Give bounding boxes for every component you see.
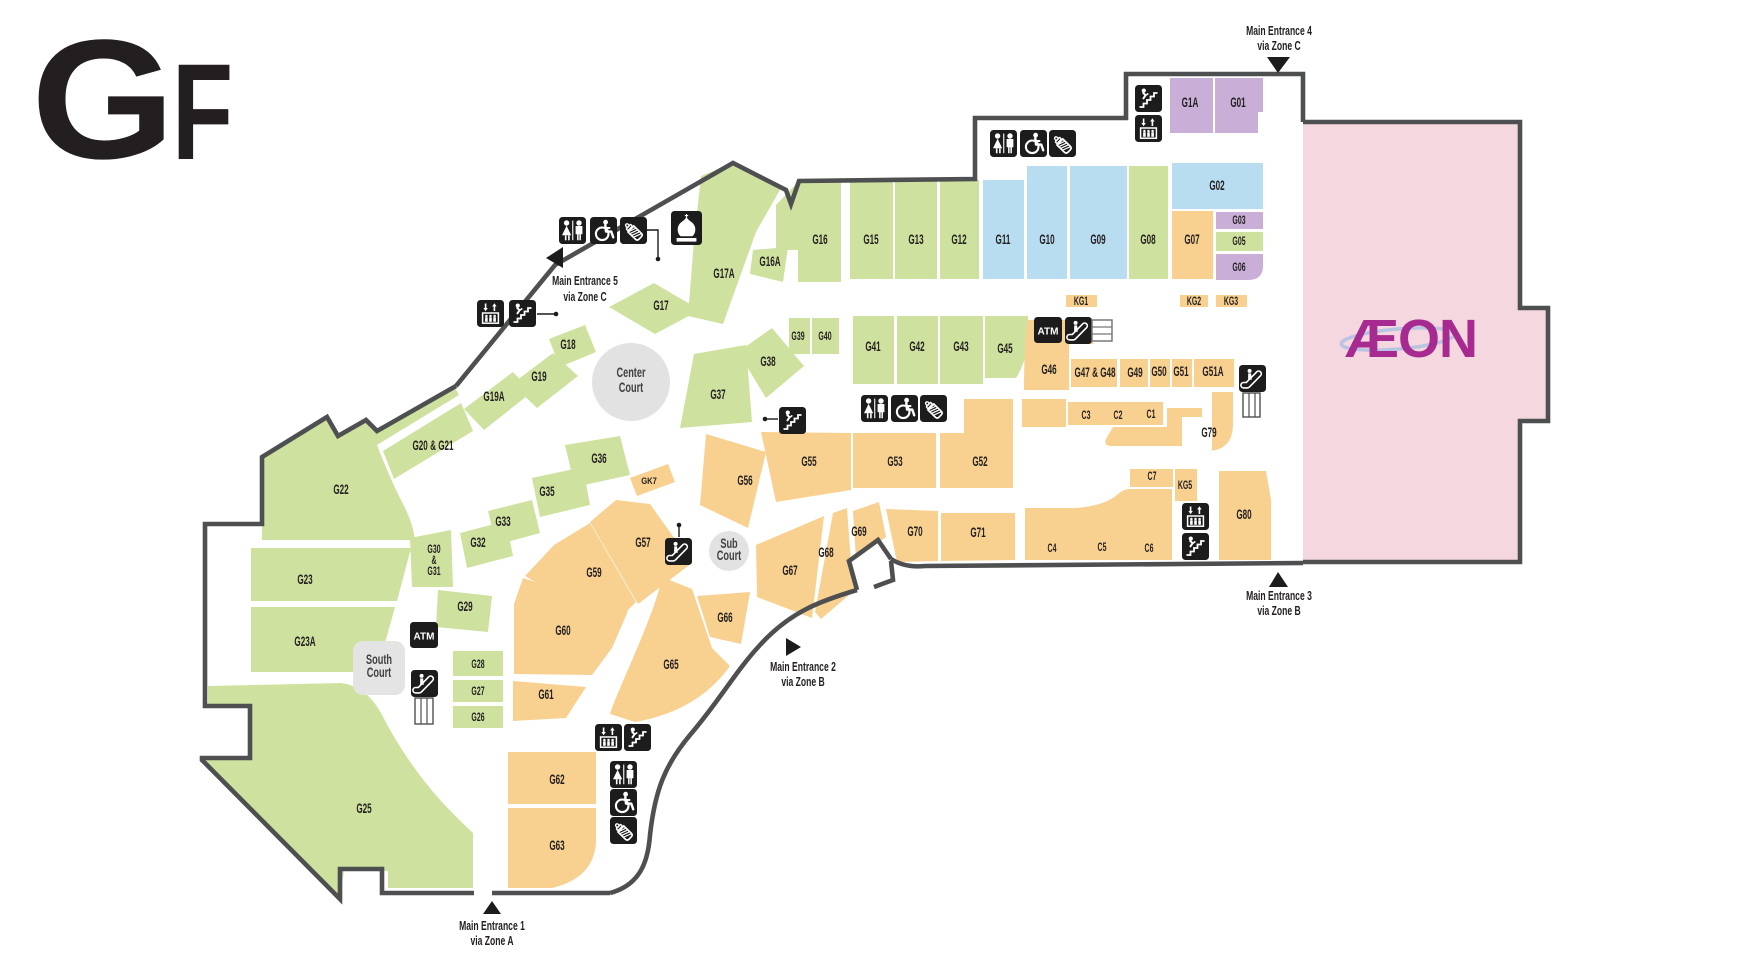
svg-text:G69: G69 [851,525,866,540]
svg-text:G71: G71 [970,526,986,541]
svg-text:G26: G26 [471,711,485,724]
svg-text:G65: G65 [663,658,679,673]
svg-text:G19: G19 [531,370,546,385]
svg-text:G80: G80 [1236,508,1251,523]
svg-text:G23: G23 [297,573,312,588]
svg-text:G56: G56 [737,474,752,489]
svg-text:G15: G15 [863,233,879,248]
svg-text:G08: G08 [1140,233,1156,248]
svg-text:G07: G07 [1184,233,1199,248]
svg-text:G17A: G17A [713,267,734,282]
svg-text:G49: G49 [1127,366,1142,381]
svg-text:G52: G52 [972,455,987,470]
svg-text:G35: G35 [539,485,555,500]
svg-text:G29: G29 [457,600,472,615]
svg-text:G55: G55 [801,455,817,470]
svg-text:G42: G42 [909,340,924,355]
svg-text:G47 & G48: G47 & G48 [1074,366,1116,381]
svg-text:G25: G25 [356,802,372,817]
svg-text:G60: G60 [555,624,570,639]
svg-text:G20 & G21: G20 & G21 [412,439,454,454]
svg-text:Main Entrance 4: Main Entrance 4 [1246,24,1312,38]
svg-text:G61: G61 [538,688,554,703]
svg-text:G41: G41 [865,340,881,355]
svg-text:via Zone B: via Zone B [781,675,824,689]
svg-text:C1: C1 [1147,408,1156,421]
svg-text:C7: C7 [1148,470,1157,483]
svg-text:Court: Court [717,549,742,563]
svg-text:via Zone C: via Zone C [1257,39,1300,53]
svg-text:G63: G63 [549,839,564,854]
svg-text:G62: G62 [549,773,564,788]
svg-text:G37: G37 [710,388,725,403]
svg-text:G40: G40 [818,330,832,343]
svg-text:G: G [31,4,175,194]
svg-text:KG1: KG1 [1074,295,1089,308]
svg-text:C6: C6 [1145,542,1154,555]
svg-text:Center: Center [616,366,645,380]
svg-text:G03: G03 [1232,214,1246,227]
svg-text:G66: G66 [717,611,732,626]
svg-text:G45: G45 [997,342,1013,357]
svg-text:G38: G38 [760,355,776,370]
svg-text:G11: G11 [996,233,1011,248]
svg-text:G16: G16 [812,233,827,248]
svg-text:F: F [172,36,233,189]
svg-text:G16A: G16A [759,255,780,270]
svg-text:C5: C5 [1098,541,1107,554]
svg-text:Court: Court [367,666,392,680]
svg-text:G43: G43 [953,340,968,355]
svg-text:G51A: G51A [1202,365,1223,380]
svg-text:Main Entrance 3: Main Entrance 3 [1246,589,1312,603]
svg-text:KG5: KG5 [1178,479,1193,492]
svg-text:KG2: KG2 [1187,295,1202,308]
svg-text:G68: G68 [818,546,834,561]
svg-text:G22: G22 [333,483,348,498]
svg-text:G67: G67 [782,564,797,579]
svg-text:G59: G59 [586,566,601,581]
svg-text:C3: C3 [1082,409,1091,422]
svg-text:G70: G70 [907,525,922,540]
svg-text:G33: G33 [495,515,510,530]
svg-text:via Zone C: via Zone C [563,290,606,304]
svg-text:G13: G13 [908,233,923,248]
svg-text:G27: G27 [471,685,485,698]
svg-text:G51: G51 [1173,365,1189,380]
svg-text:G79: G79 [1201,426,1216,441]
svg-text:C2: C2 [1114,409,1123,422]
svg-text:GK7: GK7 [641,475,657,486]
svg-text:G18: G18 [560,338,576,353]
svg-text:G31: G31 [427,565,441,578]
svg-text:G39: G39 [791,330,805,343]
svg-text:Court: Court [619,381,644,395]
svg-text:G28: G28 [471,658,485,671]
svg-text:G23A: G23A [294,635,315,650]
svg-text:G53: G53 [887,455,902,470]
svg-text:Main Entrance 5: Main Entrance 5 [552,274,618,288]
svg-text:Main Entrance 1: Main Entrance 1 [459,919,525,933]
svg-text:G50: G50 [1151,365,1166,380]
svg-text:G57: G57 [635,536,650,551]
svg-text:G01: G01 [1230,96,1246,111]
svg-text:G12: G12 [951,233,966,248]
svg-text:C4: C4 [1048,542,1057,555]
svg-text:South: South [366,653,392,667]
svg-text:via Zone B: via Zone B [1257,604,1300,618]
svg-text:KG3: KG3 [1224,295,1239,308]
svg-text:G1A: G1A [1182,96,1199,111]
svg-text:G46: G46 [1041,363,1056,378]
svg-text:G05: G05 [1232,235,1246,248]
svg-text:G36: G36 [591,452,606,467]
svg-text:G09: G09 [1090,233,1105,248]
svg-text:G10: G10 [1039,233,1054,248]
svg-text:G02: G02 [1209,179,1224,194]
svg-text:G32: G32 [470,536,485,551]
svg-text:G06: G06 [1232,261,1246,274]
svg-text:G19A: G19A [483,390,504,405]
svg-text:G17: G17 [653,299,668,314]
svg-text:Main Entrance 2: Main Entrance 2 [770,660,836,674]
svg-text:via Zone A: via Zone A [470,934,513,948]
svg-text:ÆON: ÆON [1345,309,1477,369]
